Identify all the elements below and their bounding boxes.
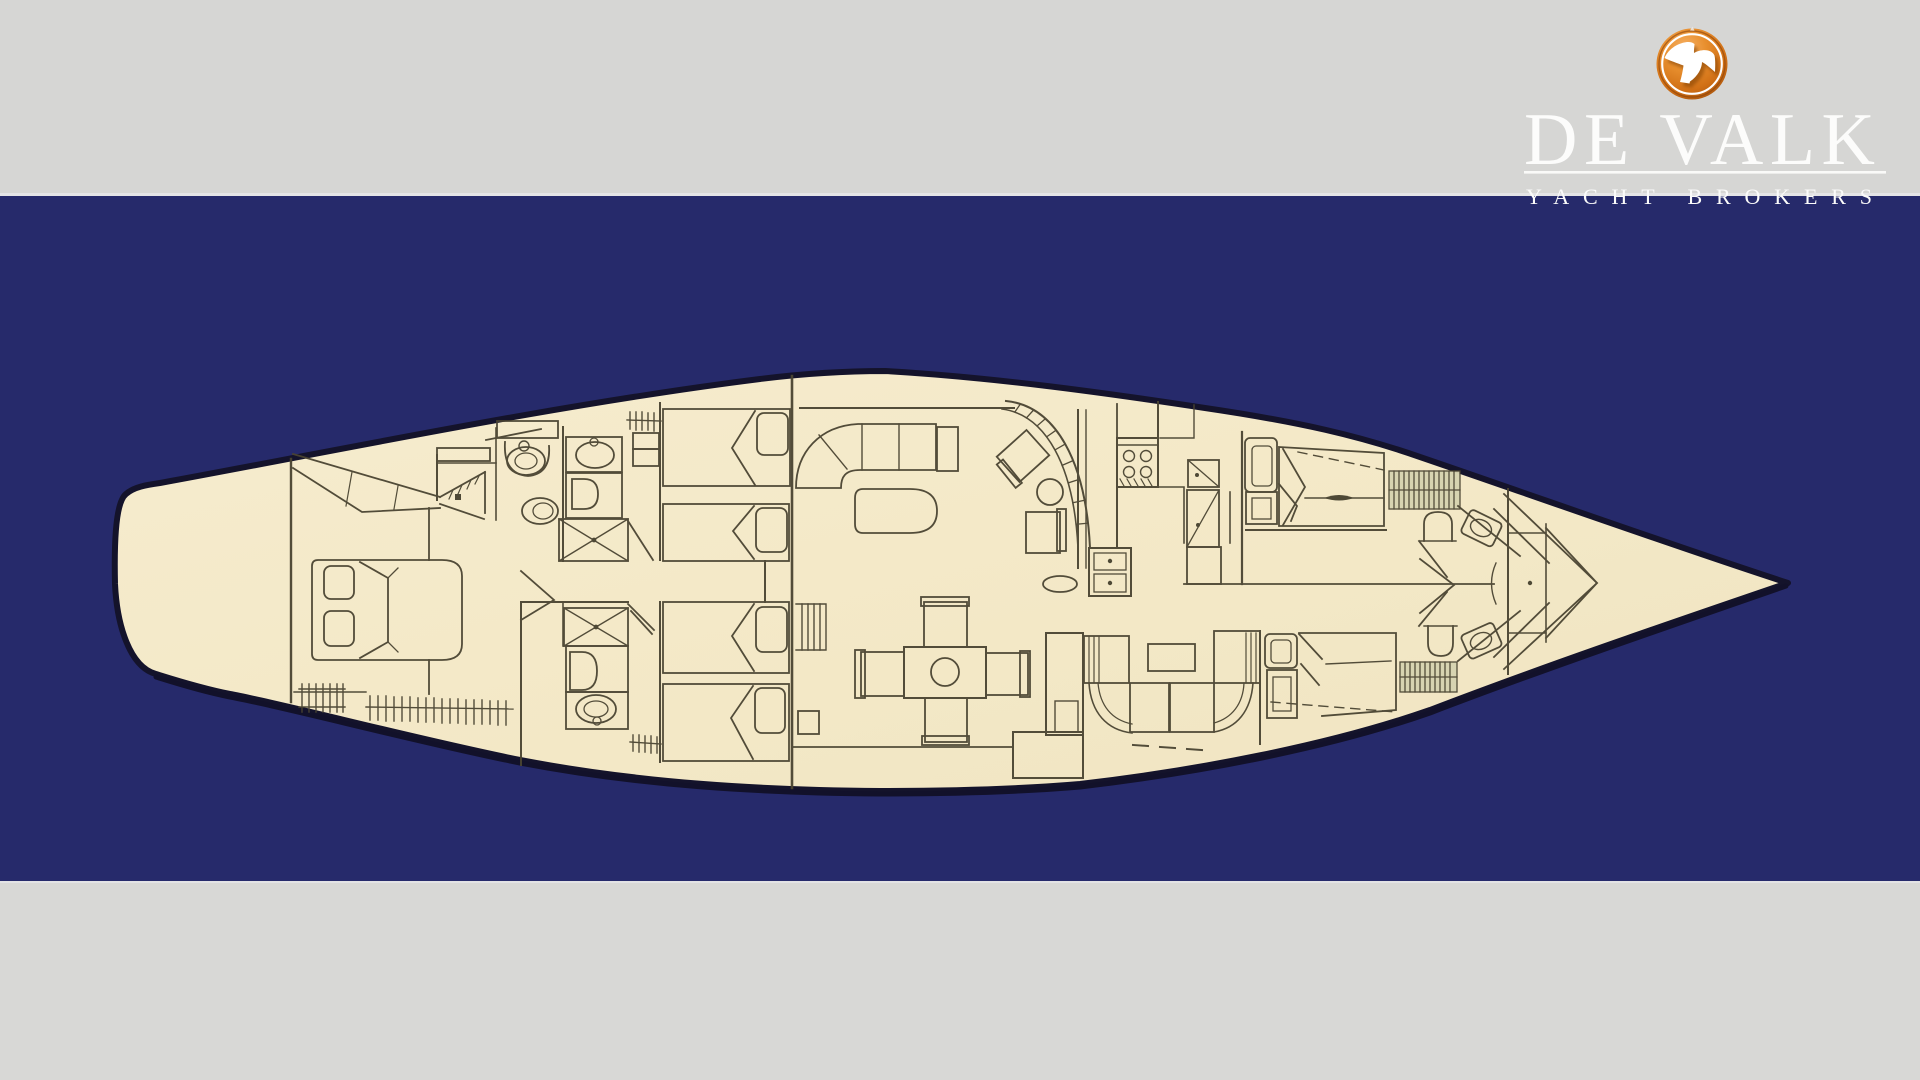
svg-text:DE VALK: DE VALK [1524,99,1875,181]
